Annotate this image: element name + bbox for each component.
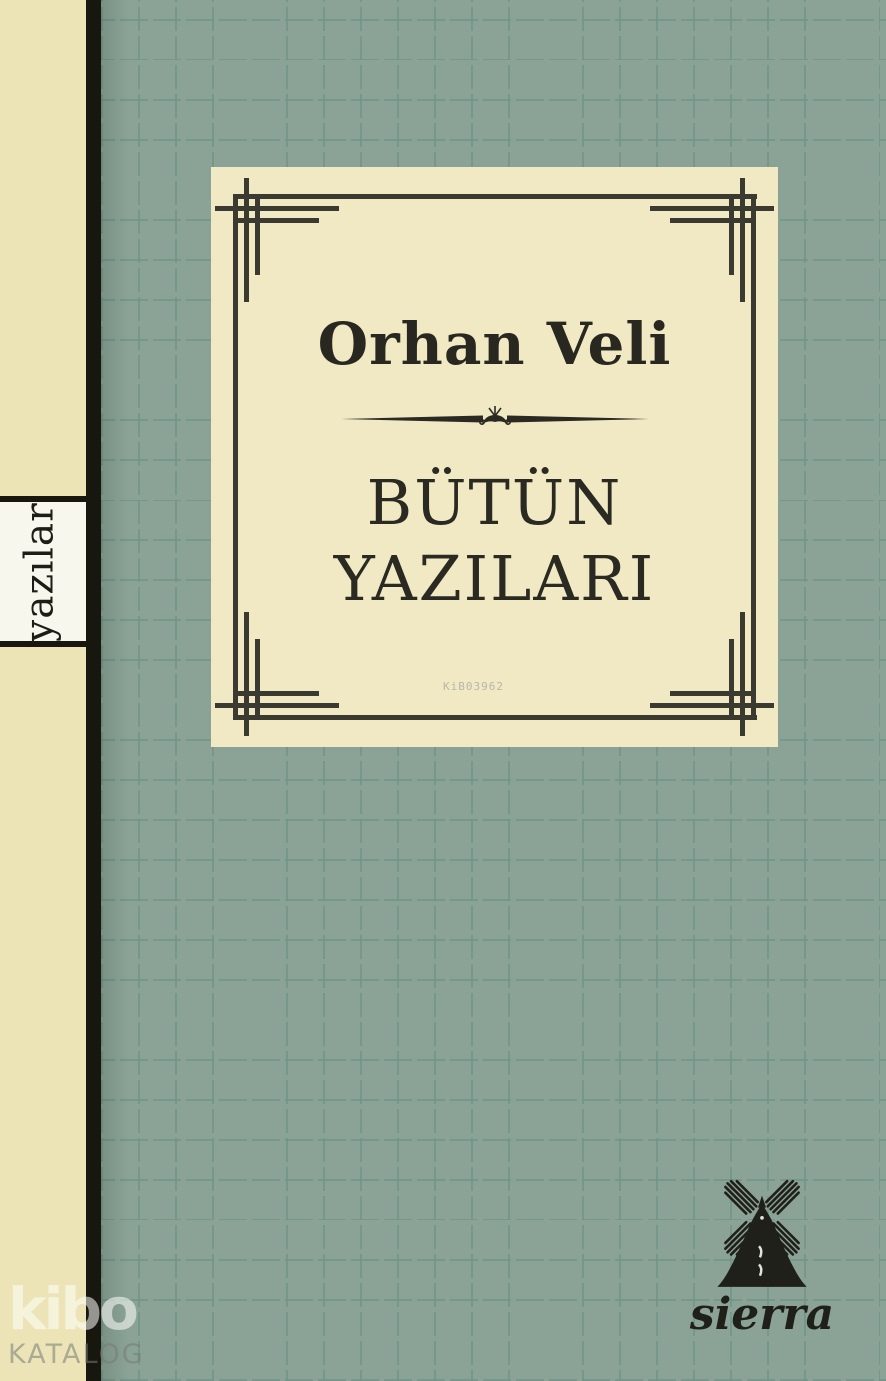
book-title: BÜTÜN YAZILARI [211, 465, 778, 617]
spine-label: yazılar [18, 502, 63, 642]
kibo-katalog-watermark: KATALOG [8, 1339, 145, 1371]
kibo-watermark: kibo KATALOG [8, 1281, 145, 1371]
book-spine: yazılar [0, 0, 86, 1381]
front-cover: Orhan Veli BÜTÜN YAZILARI KiB03962 [101, 0, 886, 1381]
publisher-name: sierra [687, 1293, 837, 1337]
catalog-code: KiB03962 [443, 680, 504, 693]
kibo-brand-watermark: kibo [8, 1281, 145, 1337]
author-name: Orhan Veli [211, 314, 778, 374]
publisher-logo: sierra [687, 1167, 837, 1337]
spine-label-box: yazılar [0, 496, 86, 647]
divider-ornament-icon [335, 403, 655, 433]
corner-lines-frame-decoration [211, 167, 778, 747]
book-cover: yazılar [0, 0, 886, 1381]
title-line-2: YAZILARI [211, 541, 778, 617]
windmill-icon [696, 1167, 828, 1293]
spine-divider-bar [86, 0, 101, 1381]
title-panel: Orhan Veli BÜTÜN YAZILARI KiB03962 [211, 167, 778, 747]
title-line-1: BÜTÜN [211, 465, 778, 541]
